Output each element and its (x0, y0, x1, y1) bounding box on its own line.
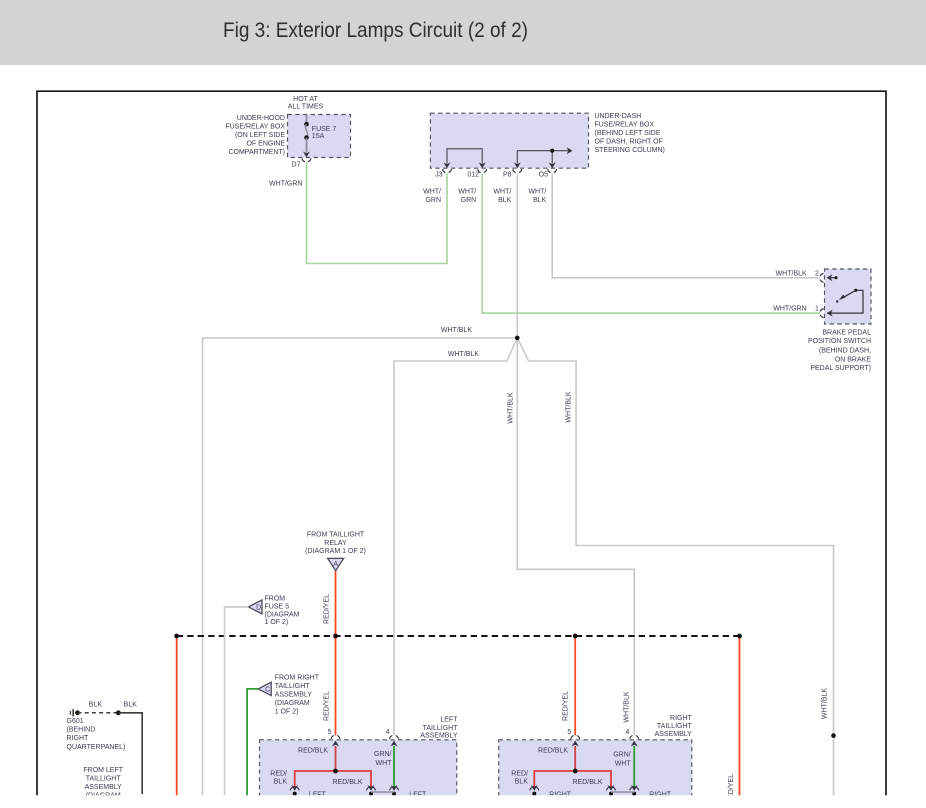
svg-text:(BEHIND: (BEHIND (67, 727, 96, 734)
svg-text:FROM: FROM (265, 595, 286, 602)
svg-text:TAILLIGHT: TAILLIGHT (86, 775, 122, 782)
svg-text:RED/YEL: RED/YEL (324, 594, 331, 624)
svg-text:BLK: BLK (515, 779, 529, 786)
svg-text:ASSEMBLY: ASSEMBLY (275, 692, 313, 699)
svg-text:FUSE 5: FUSE 5 (265, 603, 290, 610)
svg-text:WHT/BLK: WHT/BLK (776, 270, 807, 277)
svg-text:1 OF 2): 1 OF 2) (275, 709, 299, 716)
svg-text:RED/YEL: RED/YEL (563, 691, 570, 721)
svg-text:RED/BLK: RED/BLK (298, 748, 328, 755)
svg-text:(DIAGRAM 1 OF 2): (DIAGRAM 1 OF 2) (305, 548, 366, 555)
svg-text:FUSE/RELAY BOX: FUSE/RELAY BOX (225, 124, 285, 131)
svg-text:(DIAGRAM: (DIAGRAM (275, 700, 310, 707)
svg-text:1: 1 (815, 306, 819, 313)
svg-text:TAILLIGHT: TAILLIGHT (423, 725, 459, 732)
svg-text:GRN/: GRN/ (613, 752, 631, 759)
svg-text:4: 4 (625, 729, 629, 736)
svg-text:WHT/: WHT/ (493, 189, 511, 196)
svg-text:G601: G601 (67, 718, 84, 725)
svg-text:WHT/: WHT/ (423, 189, 441, 196)
svg-text:15A: 15A (312, 133, 325, 140)
svg-text:ASSEMBLY: ASSEMBLY (420, 733, 458, 740)
svg-text:(ON LEFT SIDE: (ON LEFT SIDE (235, 132, 285, 139)
svg-text:012: 012 (467, 172, 479, 179)
svg-text:UNDER-HOOD: UNDER-HOOD (237, 115, 285, 122)
svg-text:O5: O5 (539, 172, 548, 179)
svg-text:RED/BLK: RED/BLK (333, 779, 363, 786)
svg-text:D: D (256, 604, 261, 611)
svg-text:WHT/BLK: WHT/BLK (448, 351, 479, 358)
svg-text:5: 5 (328, 729, 332, 736)
svg-text:ASSEMBLY: ASSEMBLY (85, 784, 123, 791)
svg-text:WHT/: WHT/ (458, 189, 476, 196)
svg-text:WHT/: WHT/ (528, 189, 546, 196)
svg-text:BLK: BLK (89, 701, 103, 708)
svg-text:FROM RIGHT: FROM RIGHT (275, 675, 320, 682)
svg-text:2: 2 (815, 270, 819, 277)
svg-text:QUARTERPANEL): QUARTERPANEL) (67, 744, 126, 751)
svg-text:ALL TIMES: ALL TIMES (288, 104, 324, 111)
svg-text:WHT: WHT (376, 760, 393, 767)
svg-text:WHT/BLK: WHT/BLK (822, 688, 829, 719)
svg-text:RED/: RED/ (511, 771, 528, 778)
svg-text:TAILLIGHT: TAILLIGHT (275, 683, 311, 690)
svg-text:Fig 3: Exterior Lamps Circuit: Fig 3: Exterior Lamps Circuit (2 of 2) (223, 19, 528, 42)
svg-text:D7: D7 (292, 162, 301, 169)
svg-text:WHT/BLK: WHT/BLK (441, 327, 472, 334)
svg-text:(BEHIND LEFT SIDE: (BEHIND LEFT SIDE (595, 130, 661, 137)
svg-text:J3: J3 (435, 172, 443, 179)
svg-text:GRN/: GRN/ (374, 751, 392, 758)
svg-text:A: A (333, 561, 338, 568)
svg-text:UNDER-DASH: UNDER-DASH (595, 113, 642, 120)
svg-text:1 OF 2): 1 OF 2) (265, 619, 289, 626)
svg-text:WHT/GRN: WHT/GRN (773, 306, 806, 313)
svg-text:ASSEMBLY: ASSEMBLY (655, 731, 693, 738)
svg-text:WHT: WHT (615, 760, 632, 767)
svg-text:RED/BLK: RED/BLK (538, 747, 568, 754)
svg-text:WHT/BLK: WHT/BLK (508, 392, 515, 423)
svg-text:RELAY: RELAY (324, 540, 347, 547)
svg-text:OF ENGINE: OF ENGINE (246, 141, 285, 148)
svg-text:BLK: BLK (124, 701, 138, 708)
svg-text:(BEHIND DASH,: (BEHIND DASH, (819, 348, 871, 355)
svg-text:RIGHT: RIGHT (670, 715, 693, 722)
svg-text:C: C (265, 686, 270, 693)
svg-text:BLK: BLK (498, 197, 512, 204)
svg-text:FROM LEFT: FROM LEFT (83, 767, 123, 774)
svg-text:TAILLIGHT: TAILLIGHT (657, 723, 693, 730)
svg-text:P8: P8 (503, 172, 512, 179)
svg-text:POSITION SWITCH: POSITION SWITCH (808, 338, 871, 345)
svg-text:WHT/BLK: WHT/BLK (566, 391, 573, 422)
svg-text:FUSE 7: FUSE 7 (312, 126, 337, 133)
svg-text:BRAKE PEDAL: BRAKE PEDAL (822, 330, 871, 337)
svg-text:WHT/BLK: WHT/BLK (624, 691, 631, 722)
svg-text:FUSE/RELAY BOX: FUSE/RELAY BOX (595, 121, 655, 128)
svg-text:ON BRAKE: ON BRAKE (835, 357, 872, 364)
svg-text:COMPARTMENT): COMPARTMENT) (228, 149, 285, 156)
svg-text:WHT/GRN: WHT/GRN (269, 181, 302, 188)
svg-text:GRN: GRN (425, 197, 441, 204)
svg-text:STEERING COLUMN): STEERING COLUMN) (595, 147, 665, 154)
svg-text:(DIAGRAM: (DIAGRAM (265, 611, 300, 618)
svg-text:RIGHT: RIGHT (67, 735, 90, 742)
svg-text:4: 4 (386, 729, 390, 736)
svg-text:RED/YEL: RED/YEL (324, 691, 331, 721)
svg-text:PEDAL SUPPORT): PEDAL SUPPORT) (810, 365, 871, 372)
svg-text:LEFT: LEFT (440, 717, 458, 724)
svg-text:GRN: GRN (461, 197, 477, 204)
svg-text:OF DASH, RIGHT OF: OF DASH, RIGHT OF (595, 138, 663, 145)
svg-text:HOT AT: HOT AT (293, 96, 318, 103)
svg-text:5: 5 (567, 729, 571, 736)
svg-text:FROM TAILLIGHT: FROM TAILLIGHT (307, 532, 365, 539)
svg-text:RED/BLK: RED/BLK (573, 779, 603, 786)
svg-text:BLK: BLK (274, 779, 288, 786)
svg-text:RED/: RED/ (270, 771, 287, 778)
svg-text:BLK: BLK (533, 197, 547, 204)
